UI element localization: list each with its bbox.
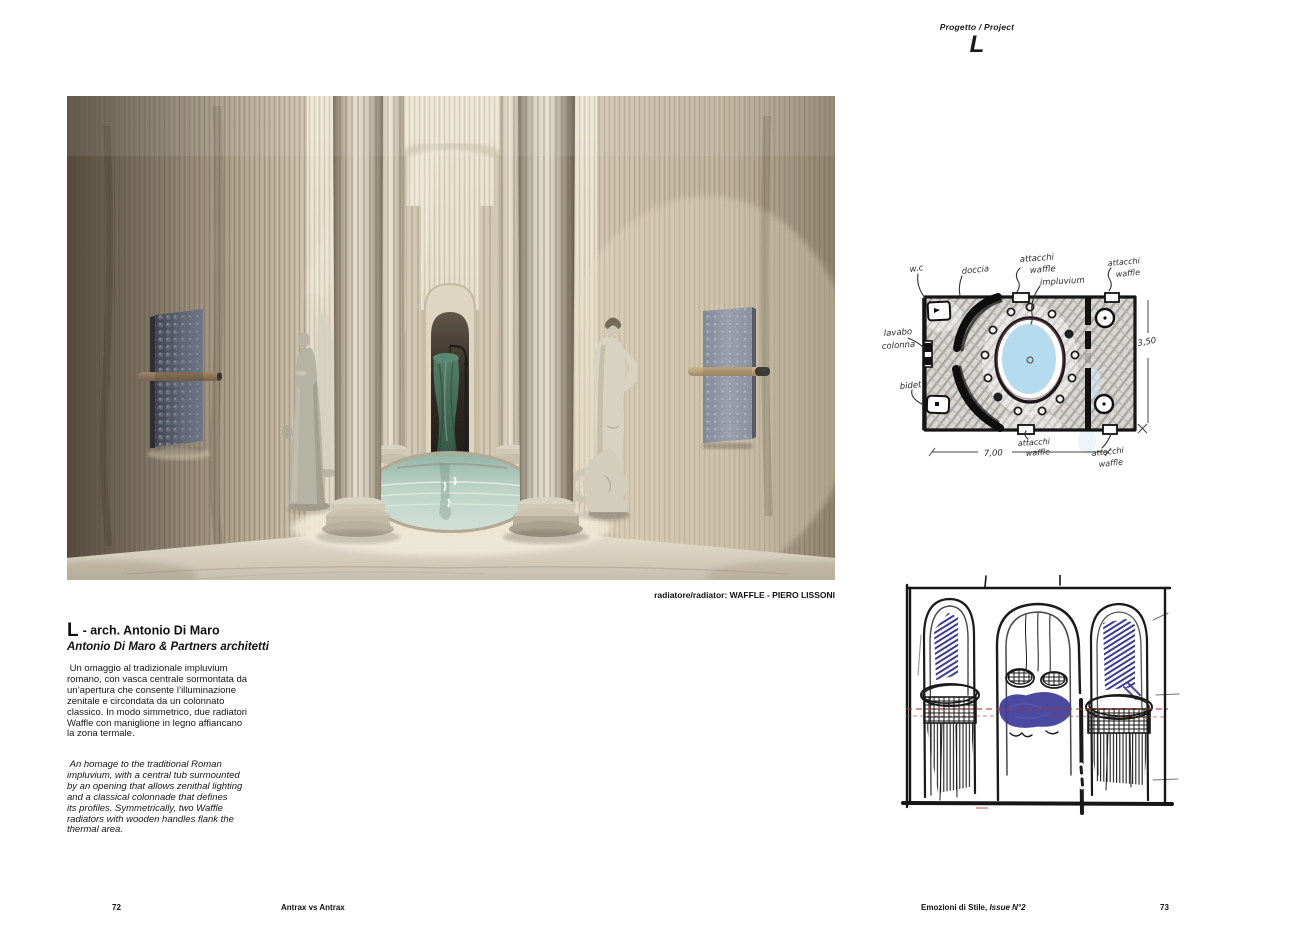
label-attacchi-bottomright: attacchi [1091,446,1125,458]
floor-plan-sketch: w.c doccia attacchi waffle impluvium att… [880,238,1180,503]
issue-label: Issue N°2 [989,903,1025,912]
body-italian: Un omaggio al tradizionale impluvium rom… [67,664,341,740]
svg-text:colonna: colonna [882,340,916,352]
plan-impluvium-tub [996,318,1064,402]
title-letter: L [67,620,79,641]
label-attacchi-bottom: attacchi [1018,437,1051,448]
svg-text:waffle: waffle [1030,264,1057,276]
label-wc: w.c [909,263,924,275]
photo-art [67,96,835,580]
svg-text:waffle: waffle [1026,447,1051,458]
running-title-right: Emozioni di Stile, Issue N°2 [921,903,1026,912]
magazine-spread: Progetto / Project L [0,0,1291,936]
plan-sketch-art: w.c doccia attacchi waffle impluvium att… [880,238,1180,503]
impluvium-render-photo [67,96,835,580]
blue-hatch [934,613,958,680]
photo-caption: radiatore/radiator: WAFFLE - PIERO LISSO… [535,590,835,600]
label-attacchi-topright: attacchi [1107,256,1141,268]
article-title: L - arch. Antonio Di Maro [67,620,220,642]
body-english: An homage to the traditional Roman implu… [67,760,341,836]
page-number-right: 73 [1160,903,1169,912]
title-rest: - arch. Antonio Di Maro [79,624,220,638]
label-doccia: doccia [961,264,989,277]
elevation-arch-right [1086,604,1168,800]
svg-text:waffle: waffle [1115,268,1140,279]
elevation-sketch-art [898,575,1188,820]
label-impluvium: impluvium [1040,276,1085,288]
dim-width: 7,00 [984,448,1003,459]
running-title-left: Antrax vs Antrax [281,903,345,912]
label-bidet: bidet [899,380,922,392]
elevation-sketch [898,575,1188,820]
page-number-left: 72 [112,903,121,912]
blue-scribble [1001,693,1070,726]
blue-hatch [1103,619,1135,690]
svg-text:waffle: waffle [1098,457,1123,469]
article-subtitle: Antonio Di Maro & Partners architetti [67,641,269,653]
elevation-arch-left [918,599,979,800]
project-letter: L [877,31,1077,59]
dim-height: 3,50 [1137,336,1157,349]
label-lavabo: lavabo [884,327,913,339]
label-attacchi-top: attacchi [1020,253,1055,265]
